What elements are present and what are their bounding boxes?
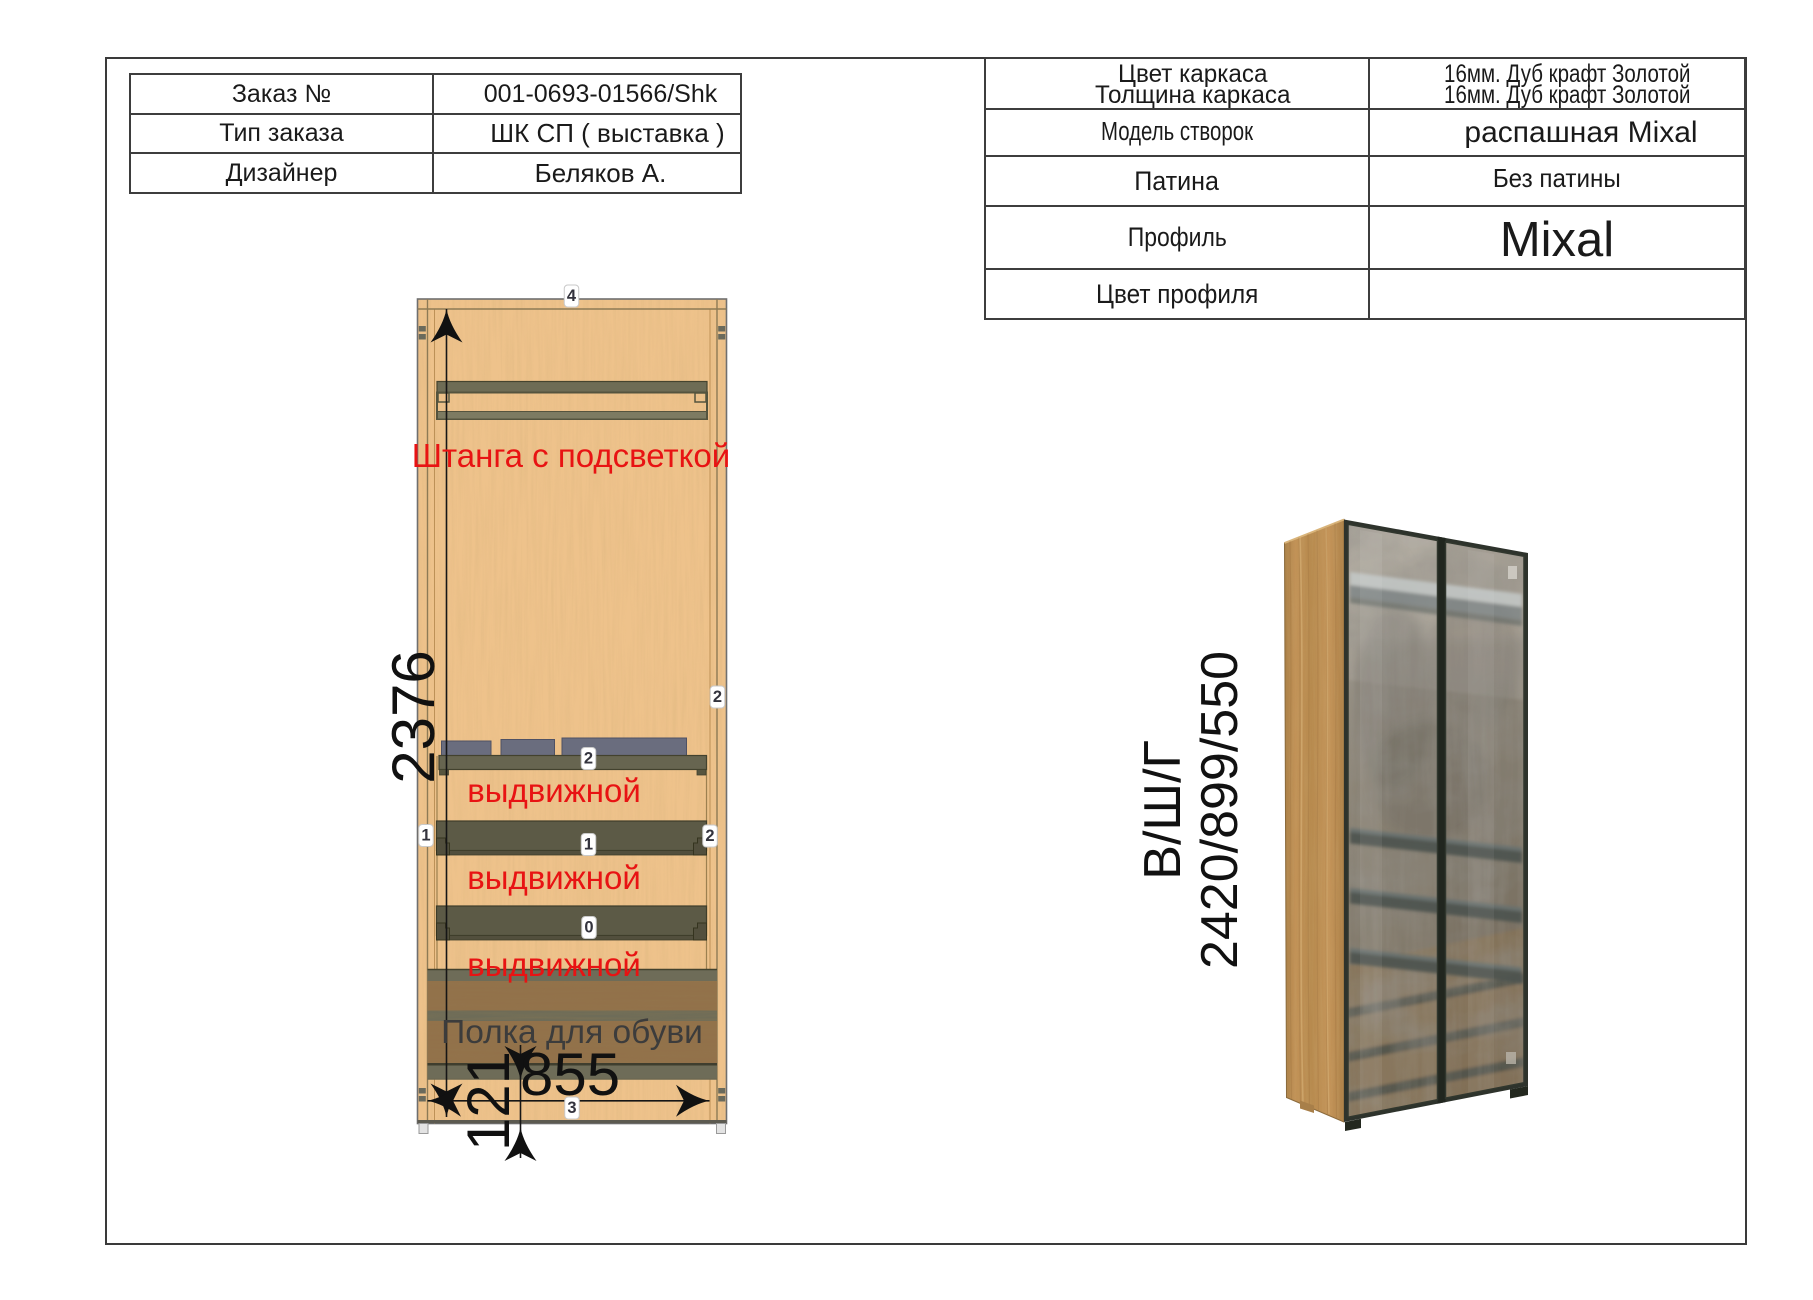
svg-text:3: 3 — [567, 1099, 576, 1117]
svg-text:выдвижной: выдвижной — [467, 772, 641, 809]
svg-text:Штанга с подсветкой: Штанга с подсветкой — [412, 437, 730, 474]
svg-text:2: 2 — [705, 827, 714, 845]
svg-text:4: 4 — [567, 287, 577, 305]
svg-text:1: 1 — [584, 836, 593, 854]
svg-text:0: 0 — [584, 919, 593, 937]
svg-text:выдвижной: выдвижной — [467, 946, 641, 983]
svg-text:выдвижной: выдвижной — [467, 859, 641, 896]
svg-text:В/Ш/Г: В/Ш/Г — [1134, 740, 1192, 879]
svg-text:2: 2 — [584, 750, 593, 768]
svg-text:2420/899/550: 2420/899/550 — [1191, 651, 1249, 969]
svg-text:121: 121 — [455, 1051, 522, 1151]
svg-text:2376: 2376 — [380, 650, 447, 783]
svg-text:2: 2 — [713, 688, 722, 706]
svg-text:1: 1 — [421, 827, 430, 845]
svg-text:Полка для обуви: Полка для обуви — [441, 1014, 703, 1051]
